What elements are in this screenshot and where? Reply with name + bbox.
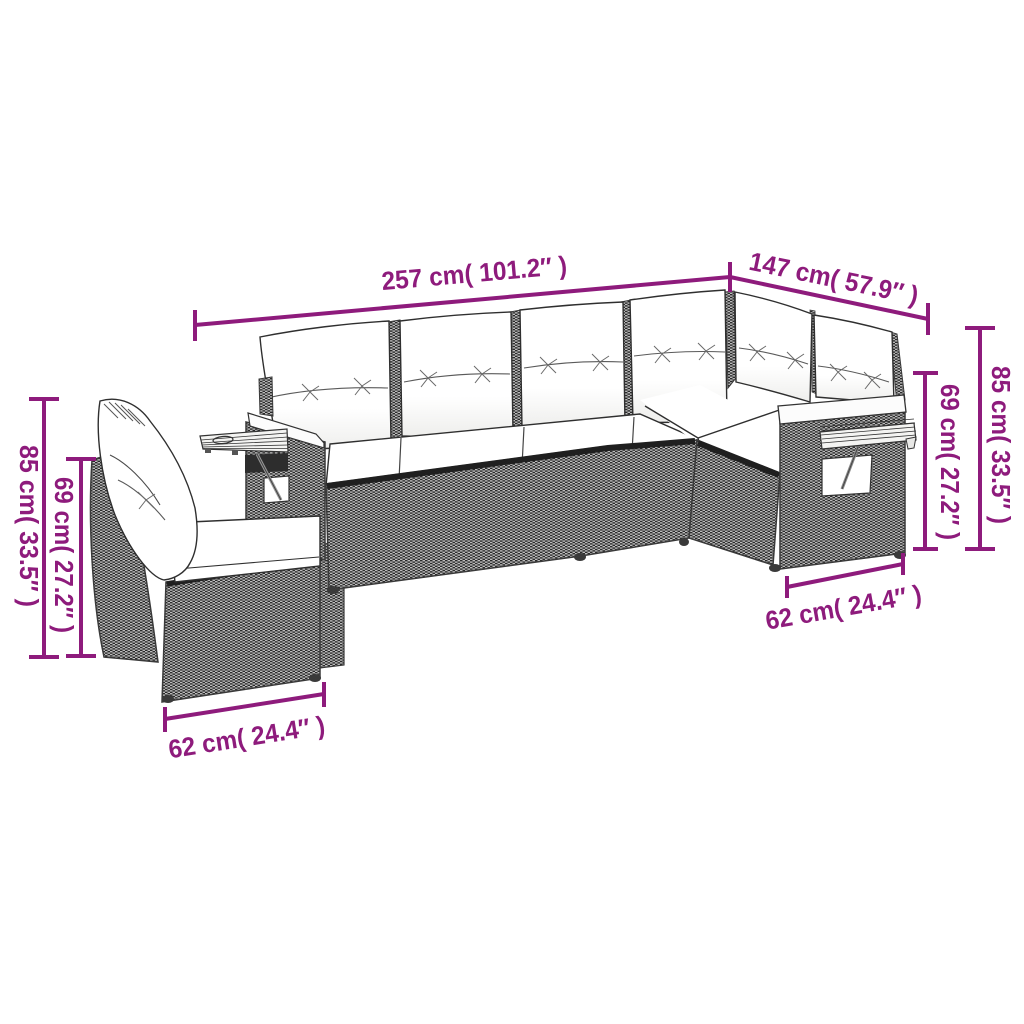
svg-text:85 cm( 33.5″ ): 85 cm( 33.5″ ) — [14, 445, 44, 607]
svg-text:85 cm( 33.5″ ): 85 cm( 33.5″ ) — [986, 366, 1016, 524]
svg-text:69 cm( 27.2″ ): 69 cm( 27.2″ ) — [49, 477, 79, 633]
svg-text:69 cm( 27.2″ ): 69 cm( 27.2″ ) — [935, 384, 965, 540]
